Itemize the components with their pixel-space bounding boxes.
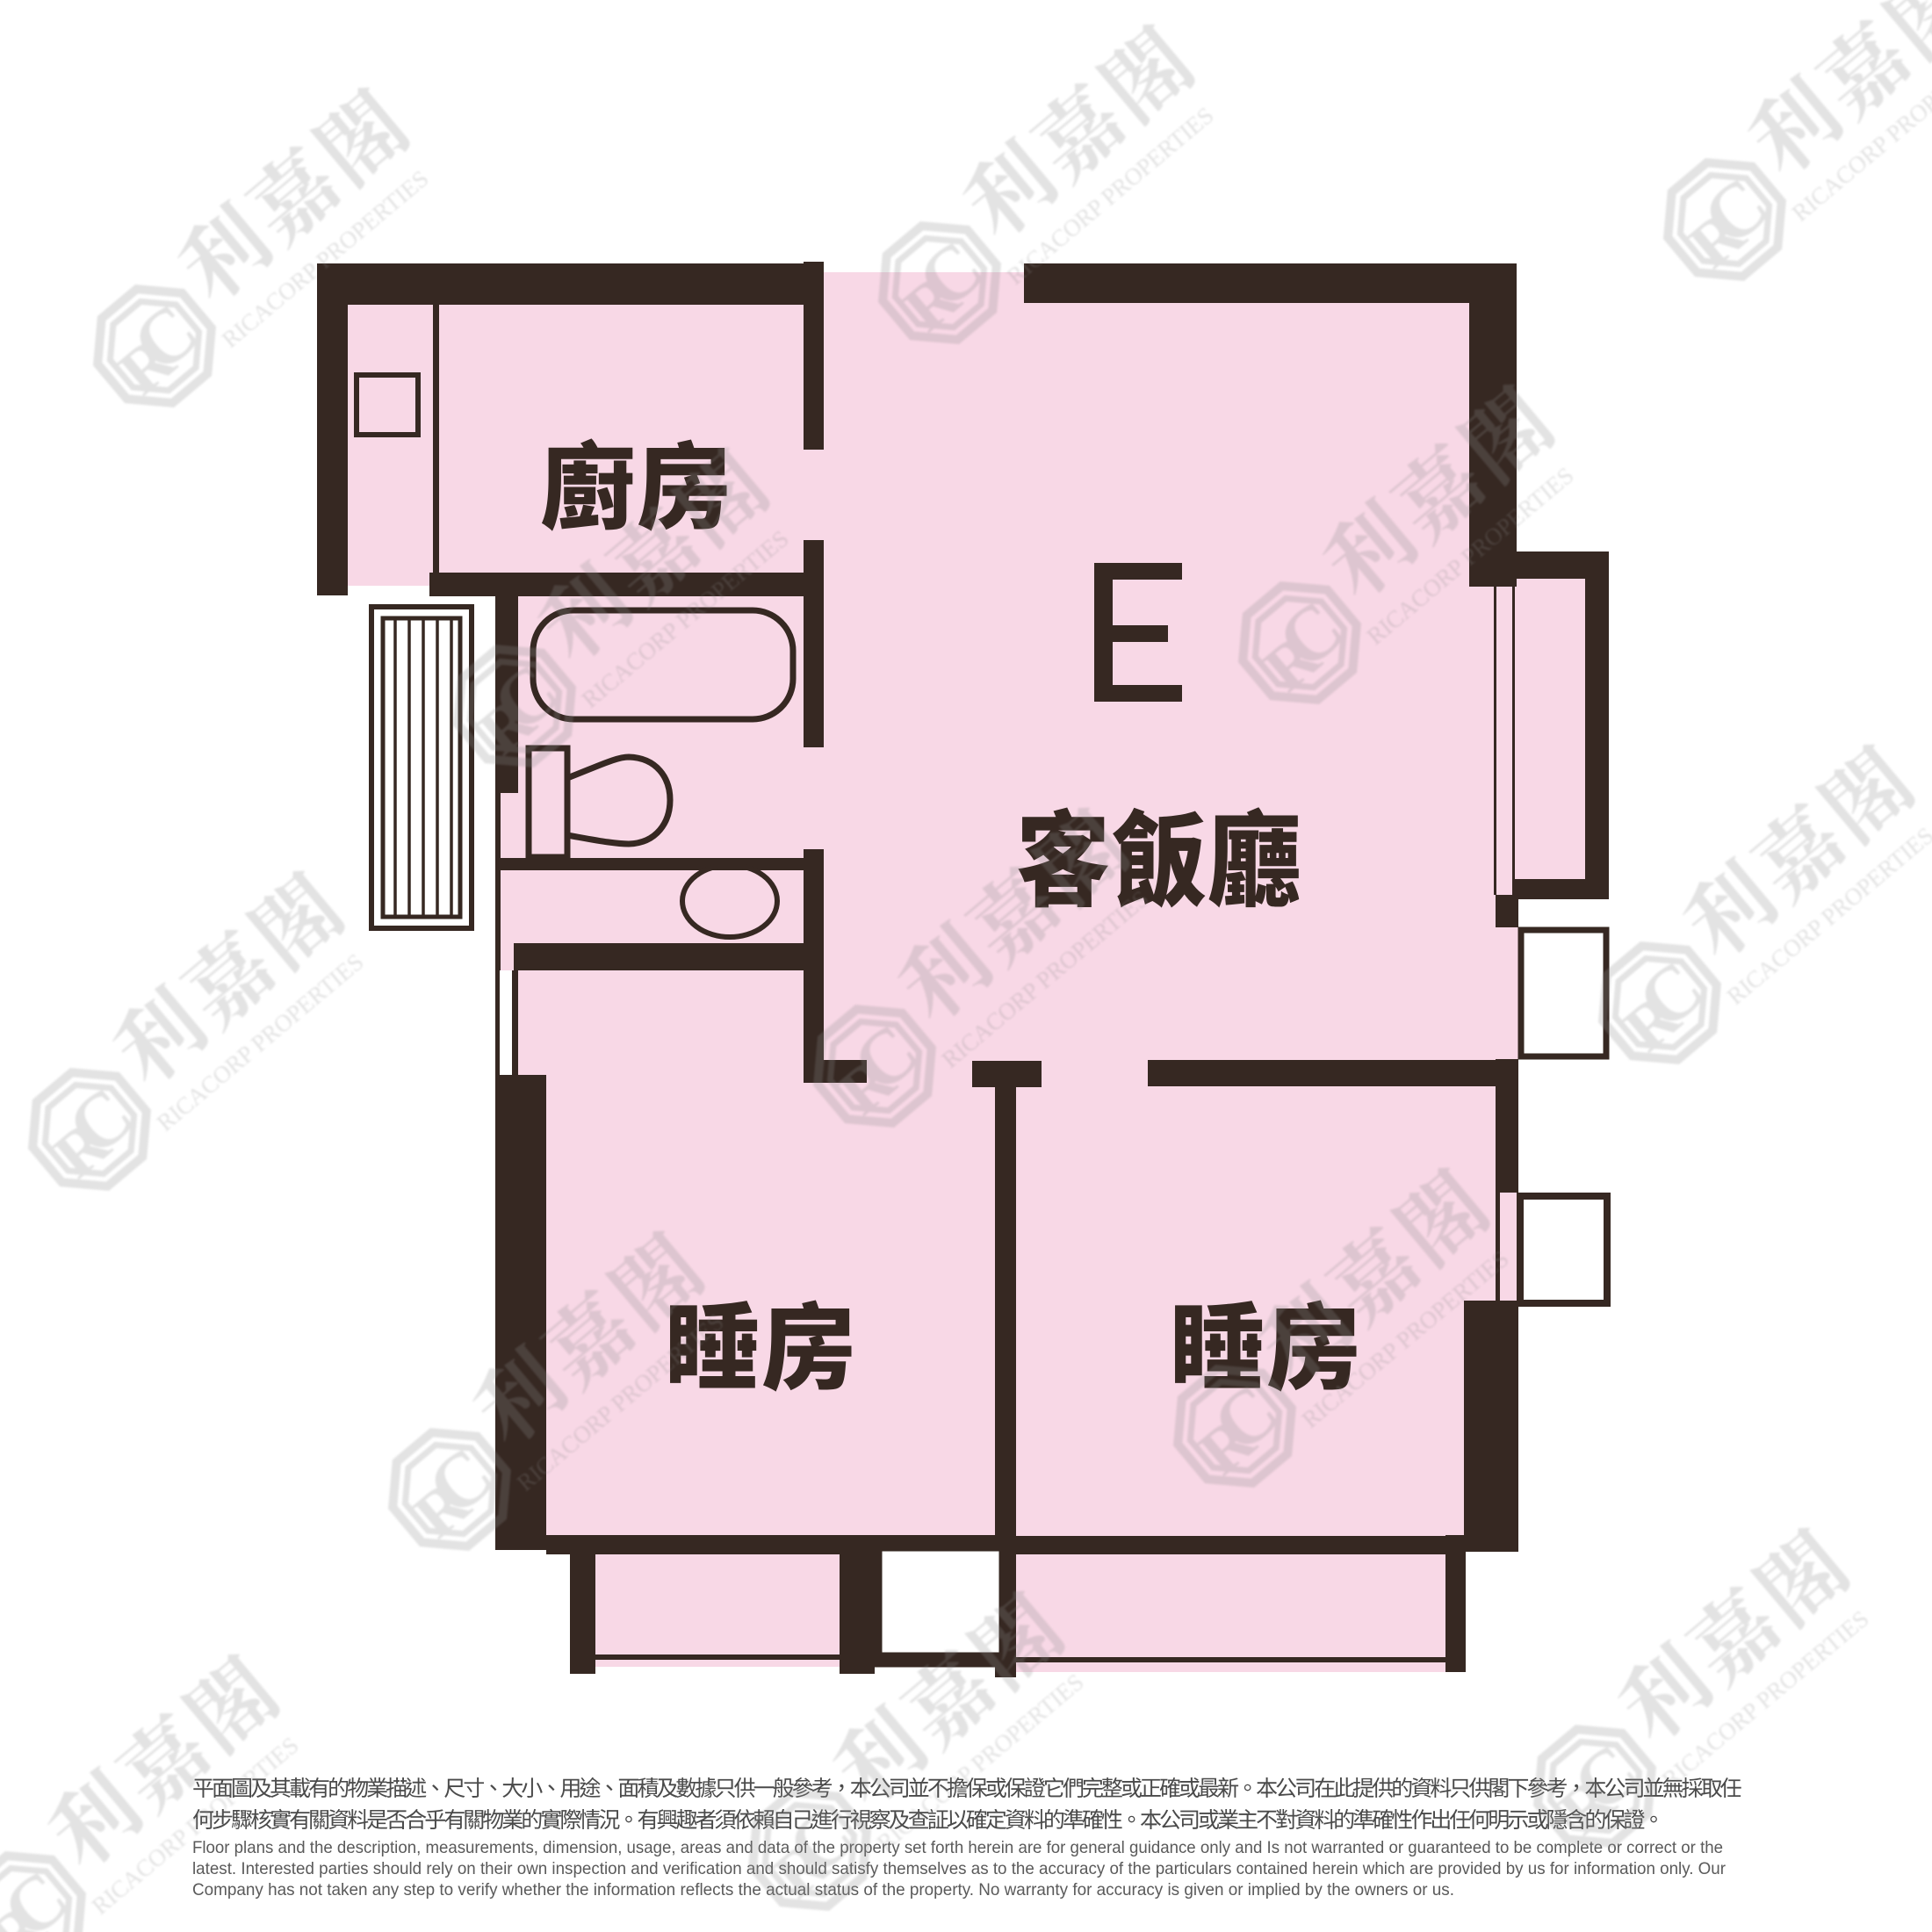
svg-text:Floor plans and the descriptio: Floor plans and the description, measure… [192,1838,1723,1857]
svg-text:latest. Interested parties sho: latest. Interested parties should rely o… [192,1859,1726,1878]
